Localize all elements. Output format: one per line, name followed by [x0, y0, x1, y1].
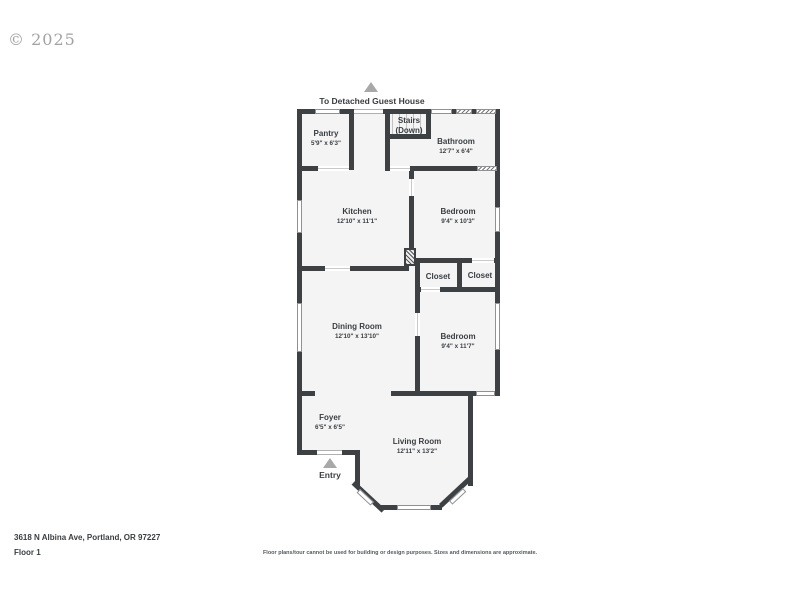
wall-livingroom-right — [468, 391, 473, 486]
wall-dining-foyer-stub — [297, 391, 315, 396]
bedroom1-door — [409, 179, 414, 196]
room-label-pantry: Pantry 5'9" x 6'3" — [311, 129, 341, 148]
copyright-watermark: © 2025 — [8, 30, 76, 49]
bathroom-bottom-window — [477, 166, 497, 171]
floor-label: Floor 1 — [14, 548, 41, 557]
entry-door — [317, 450, 342, 455]
wall-pantry-bottom — [297, 166, 318, 171]
wall-bedroom2-left-lower — [415, 336, 420, 396]
room-label-closet2: Closet — [468, 271, 492, 281]
closet1-door — [421, 287, 440, 292]
room-label-bedroom1: Bedroom 9'4" x 10'3" — [440, 207, 475, 226]
guest-house-label: To Detached Guest House — [319, 96, 424, 106]
wall-closet-left-upper — [415, 258, 420, 313]
wall-exterior-left — [297, 109, 302, 455]
room-label-foyer: Foyer 6'5" x 6'5" — [315, 413, 345, 432]
wall-kitchen-dining-right — [350, 266, 409, 271]
room-label-kitchen: Kitchen 12'10" x 11'1" — [337, 207, 377, 226]
wall-closet-bottom — [440, 287, 497, 292]
disclaimer-text: Floor plans/tour cannot be used for buil… — [263, 550, 537, 556]
floor-plan-page: © 2025 — [0, 0, 800, 600]
pantry-door — [318, 166, 349, 171]
bathroom-top-window-3 — [476, 109, 496, 114]
kitchen-window — [297, 200, 302, 233]
chimney — [404, 248, 416, 266]
property-address: 3618 N Albina Ave, Portland, OR 97227 — [14, 533, 160, 542]
room-label-bathroom: Bathroom 12'7" x 6'4" — [437, 137, 475, 156]
bedroom2-door — [415, 313, 420, 336]
entry-label: Entry — [319, 470, 341, 480]
wall-kitchen-dining-left — [297, 266, 325, 271]
wall-closet-top-stub — [494, 258, 497, 263]
room-label-closet1: Closet — [426, 272, 450, 282]
room-label-stairs: Stairs (Down) — [395, 116, 422, 136]
wall-stairs-right — [426, 112, 431, 139]
wall-livingroom-left — [355, 450, 360, 486]
wall-closet-divider — [457, 263, 462, 288]
guest-house-opening — [354, 109, 383, 114]
bedroom2-bottom-window — [476, 391, 495, 396]
bathroom-top-window-1 — [431, 109, 452, 114]
room-label-bedroom2: Bedroom 9'4" x 11'7" — [440, 332, 475, 351]
wall-pantry-right — [349, 112, 354, 170]
wall-closet-top — [416, 258, 472, 263]
bathroom-top-window-2 — [456, 109, 472, 114]
pantry-window — [315, 109, 340, 114]
wall-exterior-right — [495, 109, 500, 396]
guest-house-arrow-icon — [364, 82, 378, 92]
wall-bathroom-bottom — [410, 166, 478, 171]
bedroom2-window — [495, 303, 500, 350]
bedroom1-window — [495, 207, 500, 232]
stair-step-line — [392, 114, 393, 134]
bay-window-center — [397, 505, 431, 510]
bathroom-door — [390, 166, 410, 171]
closet2-door — [472, 258, 494, 263]
dining-window — [297, 303, 302, 352]
room-label-dining: Dining Room 12'10" x 13'10" — [332, 322, 382, 341]
wall-kitchen-bedroom — [409, 196, 414, 252]
room-label-living: Living Room 12'11" x 13'2" — [393, 437, 441, 456]
entry-arrow-icon — [323, 458, 337, 468]
kitchen-dining-opening — [325, 266, 350, 271]
